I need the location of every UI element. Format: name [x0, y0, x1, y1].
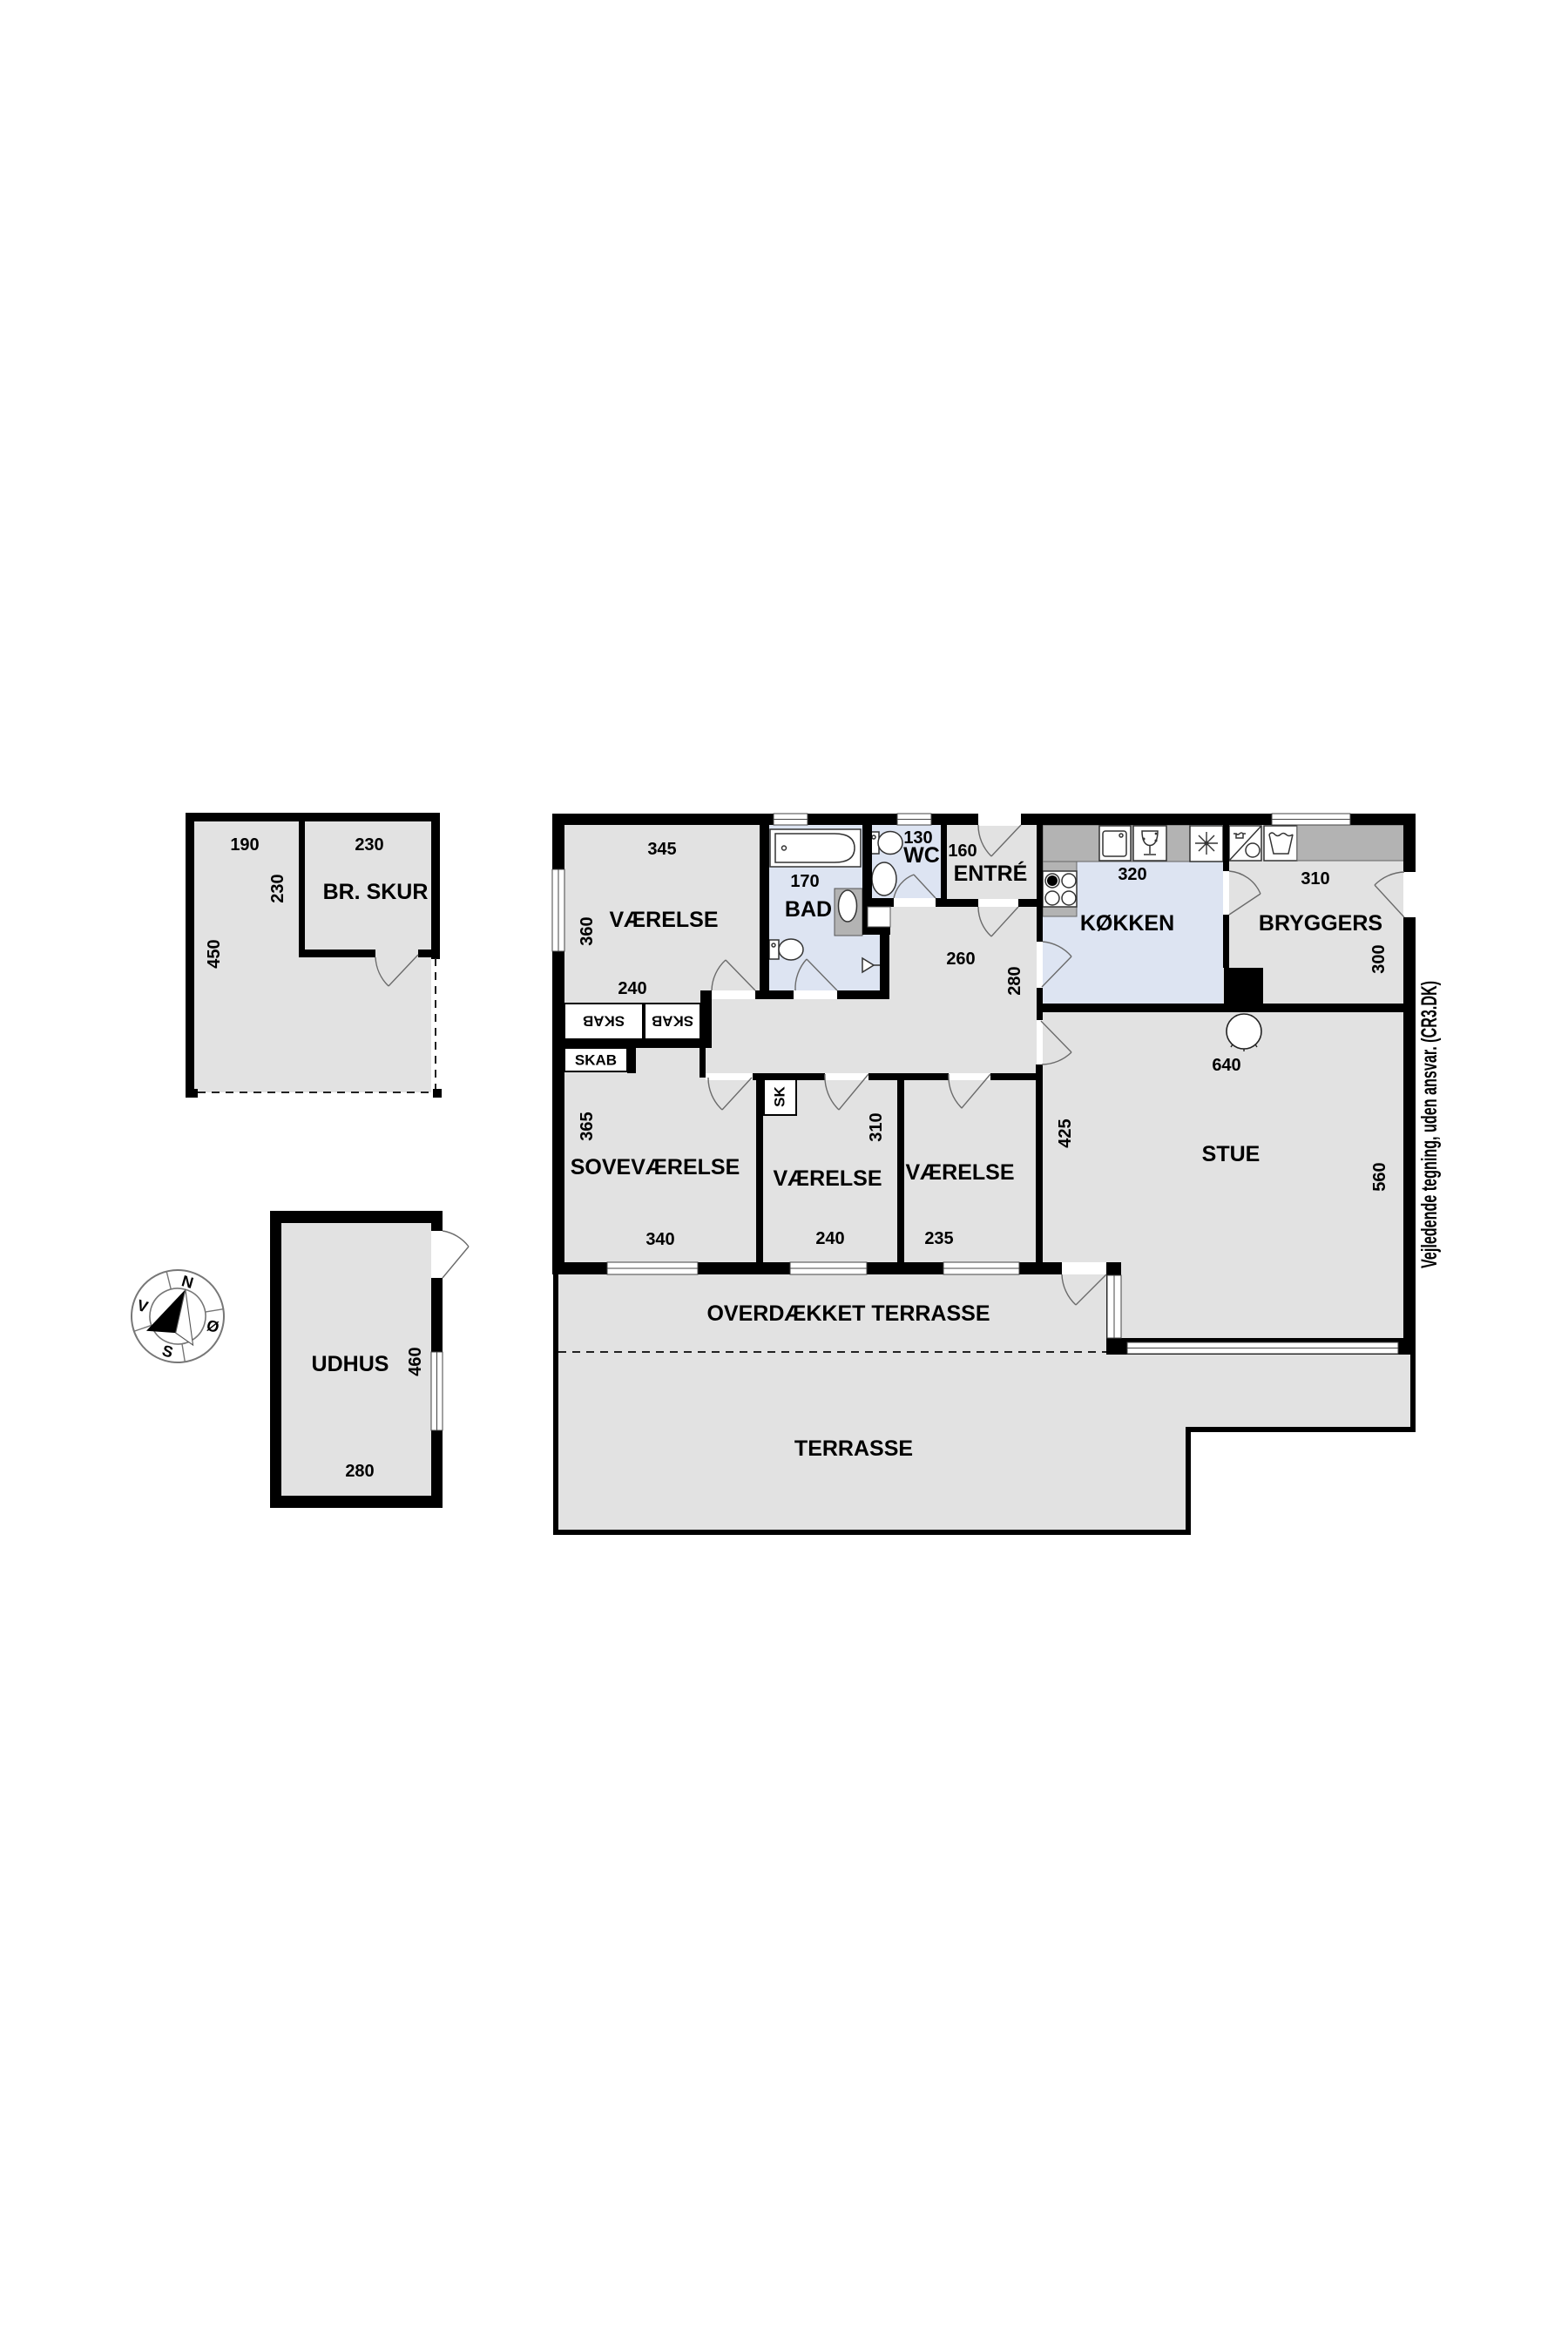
svg-text:230: 230 — [268, 874, 287, 902]
svg-text:640: 640 — [1212, 1056, 1240, 1075]
svg-text:280: 280 — [1005, 966, 1024, 995]
svg-text:STUE: STUE — [1202, 1142, 1260, 1166]
svg-text:Vejledende tegning, uden ansva: Vejledende tegning, uden ansvar. (CR3.DK… — [1417, 981, 1442, 1268]
svg-text:VÆRELSE: VÆRELSE — [905, 1160, 1014, 1185]
svg-text:190: 190 — [230, 835, 259, 855]
svg-text:KØKKEN: KØKKEN — [1080, 911, 1174, 936]
svg-text:WC: WC — [903, 843, 940, 868]
svg-text:300: 300 — [1369, 944, 1389, 973]
svg-text:560: 560 — [1370, 1162, 1389, 1191]
svg-text:BRYGGERS: BRYGGERS — [1259, 911, 1382, 936]
svg-text:OVERDÆKKET TERRASSE: OVERDÆKKET TERRASSE — [706, 1301, 990, 1326]
svg-text:235: 235 — [924, 1229, 953, 1248]
svg-text:280: 280 — [345, 1462, 374, 1481]
svg-text:340: 340 — [645, 1230, 674, 1249]
svg-text:BAD: BAD — [785, 897, 832, 922]
svg-text:UDHUS: UDHUS — [312, 1352, 389, 1376]
svg-text:450: 450 — [205, 939, 224, 968]
svg-text:BR. SKUR: BR. SKUR — [323, 880, 429, 904]
svg-text:SOVEVÆRELSE: SOVEVÆRELSE — [571, 1155, 740, 1179]
svg-text:425: 425 — [1056, 1119, 1075, 1147]
svg-text:SKAB: SKAB — [583, 1013, 625, 1030]
svg-text:SKAB: SKAB — [575, 1052, 617, 1069]
svg-text:240: 240 — [815, 1229, 844, 1248]
svg-text:170: 170 — [790, 872, 819, 891]
svg-text:345: 345 — [647, 840, 676, 859]
svg-text:460: 460 — [406, 1347, 425, 1375]
svg-text:TERRASSE: TERRASSE — [794, 1436, 913, 1461]
svg-text:ENTRÉ: ENTRÉ — [954, 861, 1028, 886]
svg-text:230: 230 — [355, 835, 383, 855]
svg-text:320: 320 — [1118, 865, 1146, 884]
svg-text:160: 160 — [948, 841, 977, 861]
svg-text:VÆRELSE: VÆRELSE — [609, 908, 718, 932]
svg-text:310: 310 — [1301, 869, 1329, 889]
svg-text:SK: SK — [772, 1085, 788, 1106]
svg-text:VÆRELSE: VÆRELSE — [773, 1166, 882, 1191]
svg-text:365: 365 — [578, 1112, 597, 1140]
svg-text:260: 260 — [946, 950, 975, 969]
svg-text:360: 360 — [578, 916, 597, 945]
svg-text:240: 240 — [618, 979, 646, 998]
svg-text:SKAB: SKAB — [652, 1013, 693, 1030]
svg-text:310: 310 — [867, 1112, 886, 1141]
